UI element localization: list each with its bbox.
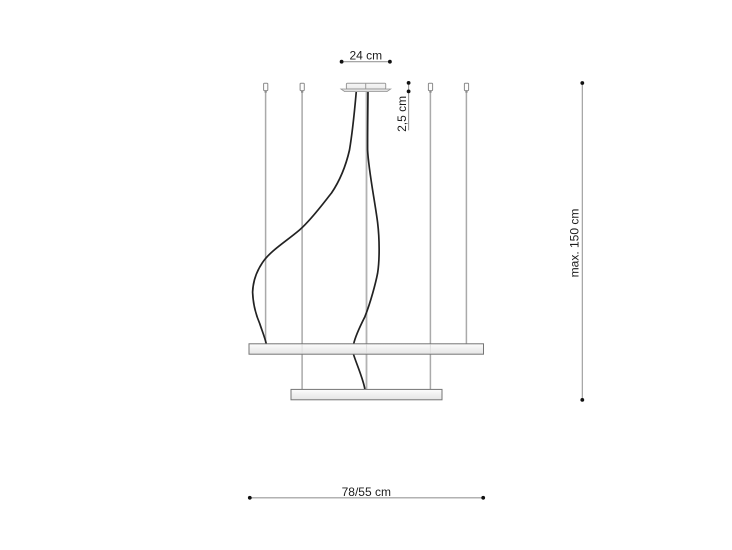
- svg-text:78/55 cm: 78/55 cm: [342, 485, 391, 499]
- svg-text:2,5 cm: 2,5 cm: [395, 96, 409, 132]
- svg-text:max. 150 cm: max. 150 cm: [568, 209, 582, 278]
- svg-text:24 cm: 24 cm: [349, 48, 382, 62]
